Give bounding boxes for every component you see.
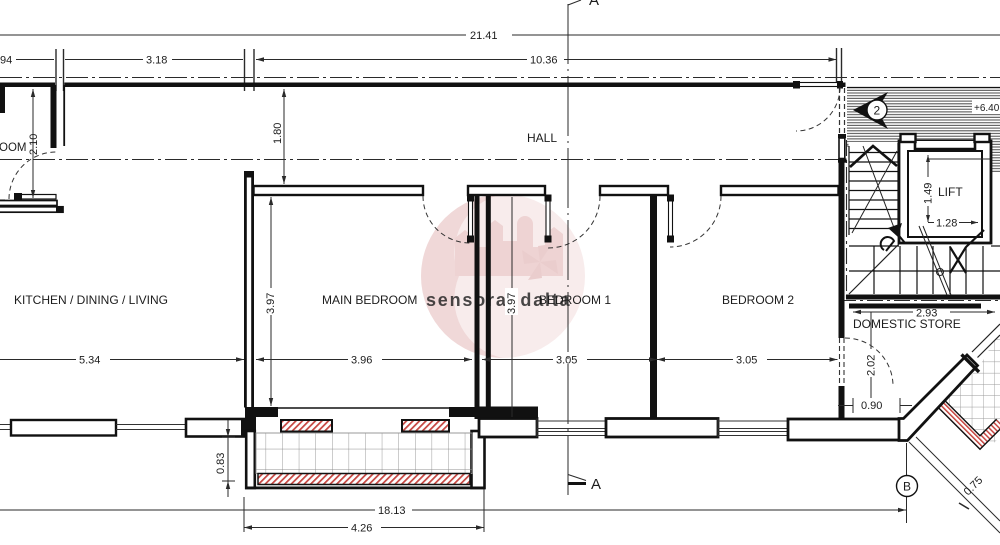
svg-text:3.05: 3.05 bbox=[736, 355, 757, 367]
svg-text:3.05: 3.05 bbox=[556, 355, 577, 367]
svg-text:DOMESTIC STORE: DOMESTIC STORE bbox=[853, 317, 961, 331]
svg-text:OOM: OOM bbox=[0, 142, 26, 154]
svg-text:4.26: 4.26 bbox=[351, 523, 372, 535]
svg-text:BEDROOM 2: BEDROOM 2 bbox=[722, 293, 794, 307]
svg-text:10.36: 10.36 bbox=[530, 55, 558, 67]
svg-text:A: A bbox=[589, 0, 599, 9]
svg-text:2.02: 2.02 bbox=[866, 355, 878, 376]
svg-text:1.80: 1.80 bbox=[272, 123, 284, 144]
svg-text:1.28: 1.28 bbox=[936, 218, 957, 230]
svg-text:B: B bbox=[903, 480, 911, 494]
svg-text:+6.40: +6.40 bbox=[974, 103, 1000, 114]
svg-text:18.13: 18.13 bbox=[378, 505, 406, 517]
svg-text:21.41: 21.41 bbox=[470, 30, 498, 42]
svg-text:MAIN BEDROOM: MAIN BEDROOM bbox=[322, 293, 417, 307]
svg-text:3.97: 3.97 bbox=[265, 293, 277, 314]
svg-text:KITCHEN / DINING / LIVING: KITCHEN / DINING / LIVING bbox=[14, 293, 168, 307]
svg-text:HALL: HALL bbox=[527, 131, 557, 145]
svg-text:BEDROOM 1: BEDROOM 1 bbox=[539, 293, 611, 307]
svg-text:1.49: 1.49 bbox=[923, 183, 935, 204]
svg-text:94: 94 bbox=[0, 55, 12, 67]
svg-text:LIFT: LIFT bbox=[938, 185, 963, 199]
svg-text:A: A bbox=[591, 476, 601, 493]
svg-text:3.97: 3.97 bbox=[506, 293, 518, 314]
svg-text:2.10: 2.10 bbox=[28, 134, 40, 155]
svg-text:5.34: 5.34 bbox=[79, 355, 100, 367]
svg-text:3.96: 3.96 bbox=[351, 355, 372, 367]
svg-text:0.90: 0.90 bbox=[861, 400, 882, 412]
svg-text:0.83: 0.83 bbox=[215, 453, 227, 474]
svg-text:3.18: 3.18 bbox=[146, 55, 167, 67]
svg-text:2: 2 bbox=[874, 104, 881, 118]
svg-text:0.75: 0.75 bbox=[962, 474, 986, 498]
